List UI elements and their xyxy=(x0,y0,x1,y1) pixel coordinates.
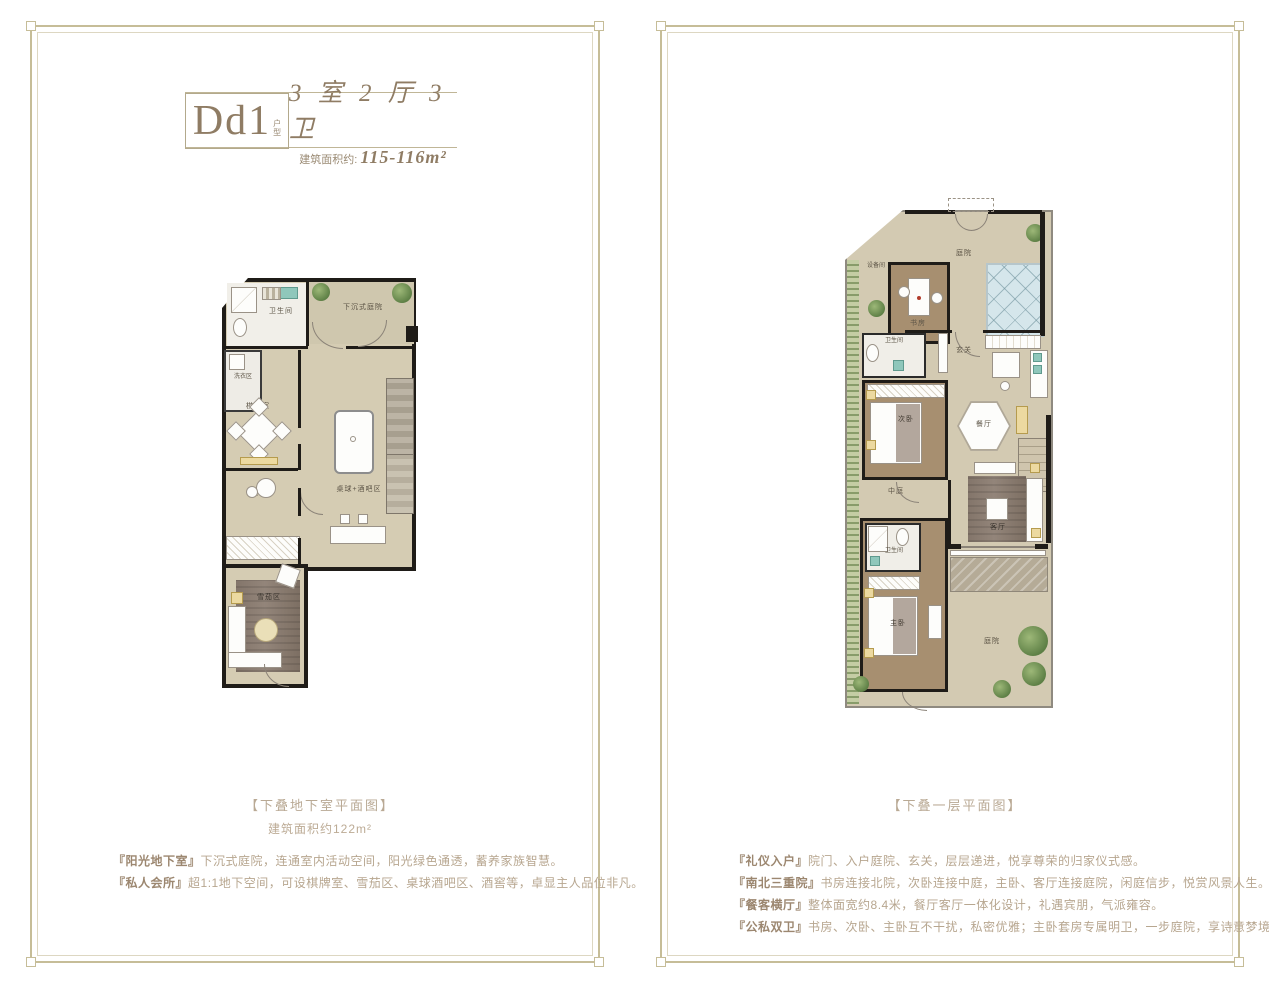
sliding-door xyxy=(961,546,1035,548)
frame-corner xyxy=(26,957,36,967)
decor-dot xyxy=(917,296,921,300)
room-label: 餐厅 xyxy=(964,421,1004,429)
kitchen-counter-icon xyxy=(985,335,1041,349)
wall-pier xyxy=(406,326,418,342)
kitchen-island-icon xyxy=(992,352,1020,378)
bench-icon xyxy=(928,605,942,639)
description-row: 『公私双卫』书房、次卧、主卧互不干扰，私密优雅；主卧套房专属明卫，一步庭院，享诗… xyxy=(733,918,1269,935)
bar-counter-icon xyxy=(330,526,386,544)
toilet-icon xyxy=(896,528,909,546)
description-text: 下沉式庭院，连通室内活动空间，阳光绿色通透，蓄养家族智慧。 xyxy=(201,854,564,868)
description-row: 『南北三重院』书房连接北院，次卧连接中庭，主卧、客厅连接庭院，闲庭信步，悦赏风景… xyxy=(733,874,1269,891)
room-label: 书房 xyxy=(892,320,944,328)
wardrobe-icon xyxy=(868,576,920,590)
description-row: 『餐客横厅』整体面宽约8.4米，餐厅客厅一体化设计，礼遇宾朋，气派雍容。 xyxy=(733,896,1164,913)
stool-icon xyxy=(340,514,350,524)
description-label: 『礼仪入户』 xyxy=(733,854,808,868)
washer-icon xyxy=(229,354,245,370)
unit-layout-spec: 3 室 2 厅 3 卫 xyxy=(289,73,457,145)
frame-corner xyxy=(26,21,36,31)
description-label: 『私人会所』 xyxy=(113,876,188,890)
unit-code-suffix-char: 户 xyxy=(273,119,281,128)
frame-corner xyxy=(594,957,604,967)
unit-title-block: Dd1 户 型 3 室 2 厅 3 卫 建筑面积约: 115-116m² xyxy=(185,92,457,148)
wall-pier xyxy=(948,544,961,549)
tree-icon xyxy=(1022,662,1046,686)
nightstand-icon xyxy=(866,440,876,450)
stool-icon xyxy=(358,514,368,524)
skylight xyxy=(986,263,1044,337)
tree-icon xyxy=(853,676,869,692)
wall xyxy=(298,444,301,470)
blanket-icon xyxy=(896,404,920,462)
nightstand-icon xyxy=(864,648,874,658)
chair-icon xyxy=(898,286,910,298)
stool-icon xyxy=(1000,381,1010,391)
frame-corner xyxy=(594,21,604,31)
tv-bench-icon xyxy=(974,462,1016,474)
sideboard-icon xyxy=(240,457,278,465)
sink-icon xyxy=(893,360,904,371)
right-plan-caption: 【下叠一层平面图】 xyxy=(835,795,1075,814)
threshold xyxy=(950,550,1046,556)
plant-icon xyxy=(312,283,330,301)
unit-area: 建筑面积约: 115-116m² xyxy=(299,147,447,168)
gate-canopy xyxy=(948,198,994,212)
billiard-ball-icon xyxy=(350,436,356,442)
brochure-page: Dd1 户 型 3 室 2 厅 3 卫 建筑面积约: 115-116m² 卫生间… xyxy=(0,0,1269,999)
wall xyxy=(983,330,1041,333)
chair-icon xyxy=(246,486,258,498)
frame-corner xyxy=(656,957,666,967)
room-label: 庭院 xyxy=(941,250,987,258)
wall xyxy=(298,488,301,516)
unit-area-value: 115-116m² xyxy=(360,147,446,167)
sink-icon xyxy=(870,556,880,566)
chair-icon xyxy=(231,592,243,604)
description-label: 『南北三重院』 xyxy=(733,876,821,890)
stone-wall xyxy=(386,378,414,456)
wall-pier xyxy=(1035,544,1048,549)
wardrobe-icon xyxy=(867,384,945,398)
frame-corner xyxy=(1234,957,1244,967)
description-row: 『私人会所』超1:1地下空间，可设棋牌室、雪茄区、桌球酒吧区、酒窖等，卓显主人品… xyxy=(113,874,644,891)
left-plan-caption-area: 建筑面积约122m² xyxy=(200,820,440,837)
room-label: 桌球+酒吧区 xyxy=(316,486,402,494)
table-icon xyxy=(256,478,276,498)
wall xyxy=(948,480,951,544)
tree-icon xyxy=(1018,626,1048,656)
unit-code-box: Dd1 户 型 xyxy=(185,93,289,149)
garden-hedge xyxy=(847,260,859,704)
wall xyxy=(298,538,301,566)
nightstand-icon xyxy=(866,390,876,400)
description-label: 『公私双卫』 xyxy=(733,920,808,934)
wall xyxy=(346,346,416,349)
description-text: 超1:1地下空间，可设棋牌室、雪茄区、桌球酒吧区、酒窖等，卓显主人品位非凡。 xyxy=(188,876,644,890)
toilet-icon xyxy=(866,344,879,362)
room-label: 雪茄区 xyxy=(242,594,296,602)
description-row: 『阳光地下室』下沉式庭院，连通室内活动空间，阳光绿色通透，蓄养家族智慧。 xyxy=(113,852,563,869)
wine-rack-icon xyxy=(226,536,300,560)
room-label: 卫生间 xyxy=(872,338,916,345)
wall xyxy=(298,350,301,428)
terrace-deck xyxy=(950,557,1048,592)
frame-corner xyxy=(656,21,666,31)
room-label: 卫生间 xyxy=(872,548,916,555)
wall xyxy=(306,280,309,346)
wall xyxy=(1046,415,1051,543)
unit-code: Dd1 xyxy=(193,100,271,142)
chair-icon xyxy=(931,292,943,304)
sink-icon xyxy=(1033,365,1042,374)
coffee-table-icon xyxy=(986,498,1008,520)
description-text: 书房、次卧、主卧互不干扰，私密优雅；主卧套房专属明卫，一步庭院，享诗意梦境。 xyxy=(808,920,1269,934)
wall xyxy=(988,210,1042,214)
side-table-icon xyxy=(1030,463,1040,473)
plant-icon xyxy=(392,283,412,303)
room-label: 次卧 xyxy=(884,416,928,424)
room-label: 客厅 xyxy=(980,524,1016,532)
unit-area-label: 建筑面积约: xyxy=(299,154,357,166)
frame-corner xyxy=(1234,21,1244,31)
unit-code-suffix: 户 型 xyxy=(273,119,281,137)
room-label: 主卧 xyxy=(878,620,918,628)
wall xyxy=(1040,212,1045,336)
description-label: 『餐客横厅』 xyxy=(733,898,808,912)
room-label: 下沉式庭院 xyxy=(328,304,398,312)
stone-wall xyxy=(386,454,414,514)
side-table-icon xyxy=(1031,528,1041,538)
description-label: 『阳光地下室』 xyxy=(113,854,201,868)
toilet-icon xyxy=(233,318,247,337)
steps-icon xyxy=(262,287,281,300)
shower-icon xyxy=(231,287,257,313)
room-label: 卫生间 xyxy=(258,308,304,316)
description-text: 院门、入户庭院、玄关，层层递进，悦享尊荣的归家仪式感。 xyxy=(808,854,1146,868)
room-label: 玄关 xyxy=(944,347,984,355)
tree-icon xyxy=(993,680,1011,698)
wall xyxy=(224,468,298,471)
left-plan-caption: 【下叠地下室平面图】 xyxy=(200,795,440,814)
table-icon xyxy=(254,618,278,642)
room-label: 庭院 xyxy=(970,638,1014,646)
description-row: 『礼仪入户』院门、入户庭院、玄关，层层递进，悦享尊荣的归家仪式感。 xyxy=(733,852,1146,869)
unit-code-suffix-char: 型 xyxy=(273,128,281,137)
plant-icon xyxy=(868,300,885,317)
unit-spec-box: 3 室 2 厅 3 卫 建筑面积约: 115-116m² xyxy=(289,93,457,147)
wall xyxy=(222,346,308,349)
sink-icon xyxy=(1033,353,1042,362)
nightstand-icon xyxy=(864,588,874,598)
description-text: 整体面宽约8.4米，餐厅客厅一体化设计，礼遇宾朋，气派雍容。 xyxy=(808,898,1164,912)
billiard-table-icon xyxy=(334,410,374,474)
description-text: 书房连接北院，次卧连接中庭，主卧、客厅连接庭院，闲庭信步，悦赏风景人生。 xyxy=(821,876,1269,890)
sideboard-icon xyxy=(1016,406,1028,434)
room-label: 洗衣区 xyxy=(224,374,262,381)
